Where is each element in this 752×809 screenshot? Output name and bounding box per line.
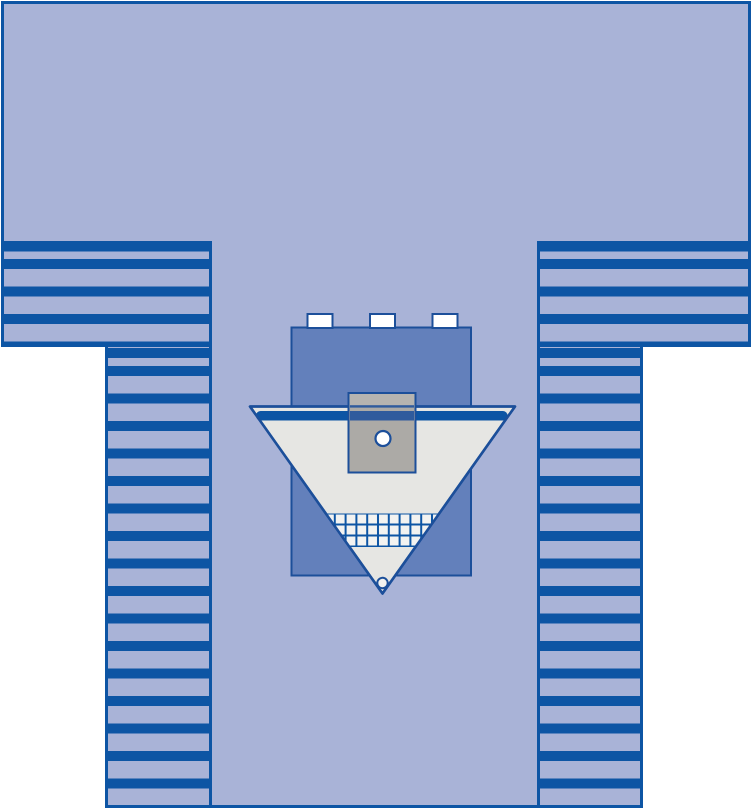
pocket-port-hole [376,431,391,446]
adhesive-tab-center [370,314,395,328]
pocket-band-showthrough [350,411,414,421]
adhesive-tab-left [308,314,333,328]
translucent-pocket [349,393,416,473]
adhesive-tab-right [433,314,458,328]
illustration-canvas [0,0,752,809]
pocket-fold-line [350,405,414,407]
apex-drain-hole [377,578,387,588]
center-assembly [0,0,752,809]
